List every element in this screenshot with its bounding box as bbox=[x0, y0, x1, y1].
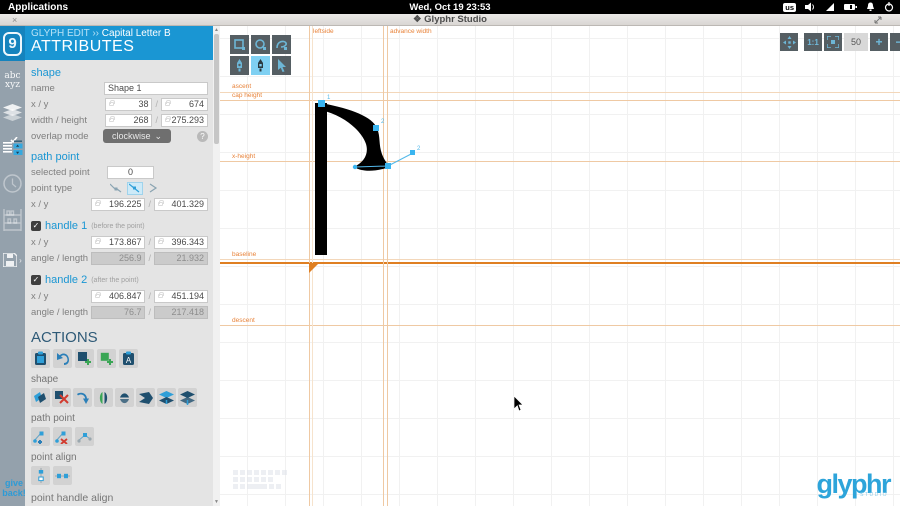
point-xy-row: x / y 196.225 / 401.329 bbox=[31, 197, 208, 211]
window-restore-icon[interactable] bbox=[874, 16, 882, 24]
insert-path-point-button[interactable] bbox=[31, 427, 50, 446]
add-component-button[interactable] bbox=[97, 349, 116, 368]
align-points-x-button[interactable] bbox=[31, 466, 50, 485]
glyph-actions-row: A bbox=[31, 349, 208, 368]
selected-point-input[interactable]: 0 bbox=[107, 166, 154, 179]
layers-icon bbox=[3, 104, 22, 121]
handle2-angle-input: 76.7 bbox=[91, 306, 145, 319]
chevron-down-icon: ⌄ bbox=[154, 131, 162, 142]
glyphr-studio-watermark: glyphr STUDIO bbox=[816, 472, 890, 498]
scroll-down-arrow[interactable]: ▼ bbox=[213, 499, 220, 505]
pan-control bbox=[780, 33, 798, 51]
handle2-heading: handle 2 bbox=[45, 274, 87, 286]
notifications-icon[interactable] bbox=[866, 2, 875, 12]
handle2-hint: (after the point) bbox=[91, 277, 138, 284]
point-y-input[interactable]: 401.329 bbox=[154, 198, 208, 211]
zoom-in-button[interactable]: + bbox=[870, 33, 888, 51]
panel-scrollbar[interactable]: ▲ ▼ bbox=[213, 26, 220, 506]
system-bar: Applications Wed, Oct 19 23:53 us bbox=[0, 0, 900, 14]
delete-path-point-button[interactable] bbox=[53, 427, 72, 446]
handle2-endpoint[interactable] bbox=[410, 150, 415, 155]
window-title: ❖ Glyphr Studio bbox=[413, 14, 487, 25]
shape-wh-row: width / height 268 / 275.293 bbox=[31, 113, 208, 127]
point-type-label: point type bbox=[31, 183, 108, 194]
panel-header: GLYPH EDIT ›› Capital Letter B ATTRIBUTE… bbox=[25, 26, 213, 60]
history-clock-icon bbox=[3, 174, 22, 193]
origin-marker bbox=[309, 263, 319, 273]
shape-y-input[interactable]: 674 bbox=[161, 98, 208, 111]
actions-heading: ACTIONS bbox=[31, 329, 208, 346]
scrollbar-thumb[interactable] bbox=[214, 34, 219, 144]
handle2-xy-row: x / y 406.847 / 451.194 bbox=[31, 289, 208, 303]
main-nav-sidebar: 9 abcxyz › give back! bbox=[0, 26, 25, 506]
overlap-mode-row: overlap mode clockwise⌄ ? bbox=[31, 129, 208, 143]
selected-point-marker[interactable] bbox=[318, 100, 325, 107]
point-type-symmetric-button[interactable] bbox=[108, 182, 124, 195]
slash-separator: / bbox=[155, 99, 158, 109]
paste-glyph-button[interactable]: A bbox=[119, 349, 138, 368]
shape-actions-label: shape bbox=[31, 374, 208, 385]
overlap-mode-label: overlap mode bbox=[31, 131, 103, 142]
lock-icon[interactable] bbox=[165, 118, 170, 122]
zoom-1to1-button[interactable]: 1:1 bbox=[804, 33, 822, 51]
lock-icon[interactable] bbox=[109, 118, 114, 122]
mouse-cursor bbox=[513, 396, 524, 412]
paste-shape-button[interactable] bbox=[31, 349, 50, 368]
undo-button[interactable] bbox=[53, 349, 72, 368]
slash-separator: / bbox=[148, 291, 151, 301]
zoom-fit-button[interactable] bbox=[824, 33, 842, 51]
shape-actions-row bbox=[31, 388, 208, 407]
path-point-actions-row bbox=[31, 427, 208, 446]
svg-text:A: A bbox=[126, 356, 132, 365]
point-type-row: point type bbox=[31, 181, 208, 195]
shape-x-input[interactable]: 38 bbox=[105, 98, 152, 111]
point-align-row bbox=[31, 466, 208, 485]
lock-icon[interactable] bbox=[158, 294, 163, 298]
handle1-length-input: 21.932 bbox=[154, 252, 208, 265]
flip-horizontal-button[interactable] bbox=[94, 388, 113, 407]
shelf-icon bbox=[3, 209, 22, 231]
shape-name-label: name bbox=[31, 83, 104, 94]
lock-icon[interactable] bbox=[95, 294, 100, 298]
handle2-point-label: 2 bbox=[417, 146, 421, 152]
save-disk-icon bbox=[3, 253, 17, 267]
handle1-checkbox[interactable]: ✓ bbox=[31, 221, 41, 231]
nav-history[interactable] bbox=[0, 174, 25, 193]
handle2-y-input[interactable]: 451.194 bbox=[154, 290, 208, 303]
point-handle-align-label: point handle align bbox=[31, 492, 208, 504]
handle2-xy-label: x / y bbox=[31, 291, 91, 302]
path-point-marker[interactable] bbox=[385, 163, 391, 169]
panel-title: ATTRIBUTES bbox=[31, 38, 213, 56]
glyph-bowl[interactable] bbox=[321, 103, 389, 171]
handle2-x-input[interactable]: 406.847 bbox=[91, 290, 145, 303]
window-title-bar[interactable]: × ❖ Glyphr Studio bbox=[0, 14, 900, 26]
glyph-drawing[interactable]: 1 2 2 bbox=[220, 26, 900, 506]
nav-attributes[interactable] bbox=[0, 137, 25, 157]
flip-vertical-button[interactable] bbox=[115, 388, 134, 407]
handle1-x-input[interactable]: 173.867 bbox=[91, 236, 145, 249]
slash-separator: / bbox=[148, 237, 151, 247]
handle2-al-label: angle / length bbox=[31, 307, 91, 318]
handle2-length-input: 217.418 bbox=[154, 306, 208, 319]
new-rectangle-tool[interactable] bbox=[230, 35, 249, 54]
tool-palette bbox=[230, 35, 291, 75]
network-icon[interactable] bbox=[825, 3, 835, 12]
glyphr-logo-icon: 9 bbox=[3, 32, 22, 56]
reverse-winding-button[interactable] bbox=[136, 388, 155, 407]
point-type-flat-button[interactable] bbox=[127, 182, 143, 195]
give-back-link[interactable]: give back! bbox=[0, 478, 28, 498]
battery-icon[interactable] bbox=[844, 3, 857, 11]
shape-xy-row: x / y 38 / 674 bbox=[31, 97, 208, 111]
system-clock[interactable]: Wed, Oct 19 23:53 bbox=[0, 2, 900, 13]
zoom-controls: 1:1 50 + − bbox=[804, 33, 900, 51]
point-type-corner-button[interactable] bbox=[146, 182, 162, 195]
shape-wh-label: width / height bbox=[31, 115, 105, 126]
volume-icon[interactable] bbox=[805, 2, 816, 12]
nav-glyph-list[interactable]: abcxyz bbox=[0, 72, 25, 90]
handle1-heading: handle 1 bbox=[45, 220, 87, 232]
selected-point-row: selected point 0 bbox=[31, 165, 208, 179]
align-points-y-button[interactable] bbox=[53, 466, 72, 485]
keyboard-layout-badge[interactable]: us bbox=[783, 3, 796, 12]
handle1-al-label: angle / length bbox=[31, 253, 91, 264]
point-xy-label: x / y bbox=[31, 199, 91, 210]
attributes-panel: GLYPH EDIT ›› Capital Letter B ATTRIBUTE… bbox=[25, 26, 213, 506]
new-path-tool[interactable] bbox=[272, 35, 291, 54]
edit-canvas[interactable]: ascent cap height x-height baseline desc… bbox=[220, 26, 900, 506]
path-point-actions-label: path point bbox=[31, 413, 208, 424]
slash-separator: / bbox=[148, 307, 151, 317]
handle2-angle-length-row: angle / length 76.7 / 217.418 bbox=[31, 305, 208, 319]
lock-icon[interactable] bbox=[95, 240, 100, 244]
zoom-out-button[interactable]: − bbox=[890, 33, 900, 51]
path-point-section-heading: path point bbox=[31, 151, 208, 163]
system-tray: us bbox=[783, 2, 894, 12]
panel-expand-arrow[interactable]: › bbox=[19, 256, 22, 265]
lock-icon[interactable] bbox=[158, 240, 163, 244]
path-point-marker[interactable] bbox=[373, 125, 379, 131]
selected-point-label: selected point bbox=[31, 167, 107, 178]
overlap-mode-select[interactable]: clockwise⌄ bbox=[103, 129, 171, 143]
handle1-hint: (before the point) bbox=[91, 223, 144, 230]
help-icon[interactable]: ? bbox=[197, 131, 208, 142]
handle1-xy-label: x / y bbox=[31, 237, 91, 248]
nav-save[interactable]: › bbox=[0, 253, 25, 267]
lock-icon[interactable] bbox=[165, 102, 170, 106]
move-shape-down-button[interactable] bbox=[178, 388, 197, 407]
handle1-endpoint[interactable] bbox=[353, 165, 357, 169]
shape-name-row: name Shape 1 bbox=[31, 81, 208, 95]
attributes-checklist-icon bbox=[3, 137, 23, 157]
pan-button[interactable] bbox=[780, 33, 798, 51]
keyboard-hint-graphic bbox=[233, 470, 303, 496]
handle2-line bbox=[388, 153, 413, 166]
scroll-up-arrow[interactable]: ▲ bbox=[213, 27, 220, 33]
shape-xy-label: x / y bbox=[31, 99, 105, 110]
lock-icon[interactable] bbox=[109, 102, 114, 106]
handle2-checkbox[interactable]: ✓ bbox=[31, 275, 41, 285]
window-close-icon[interactable]: × bbox=[12, 15, 17, 25]
point1-label: 1 bbox=[327, 95, 331, 101]
path-add-point-tool[interactable] bbox=[251, 56, 270, 75]
copy-shape-button[interactable] bbox=[31, 388, 50, 407]
nav-glyphr-logo[interactable]: 9 bbox=[0, 26, 25, 61]
power-icon[interactable] bbox=[884, 2, 894, 12]
handle1-angle-length-row: angle / length 256.9 / 21.932 bbox=[31, 251, 208, 265]
rotate-shape-button[interactable] bbox=[73, 388, 92, 407]
path-edit-tool[interactable] bbox=[230, 56, 249, 75]
add-shape-button[interactable] bbox=[75, 349, 94, 368]
handle1-y-input[interactable]: 396.343 bbox=[154, 236, 208, 249]
nav-shelf[interactable] bbox=[0, 209, 25, 231]
shape-name-input[interactable]: Shape 1 bbox=[104, 82, 208, 95]
handle1-angle-input: 256.9 bbox=[91, 252, 145, 265]
glyph-stem[interactable] bbox=[315, 103, 327, 255]
slash-separator: / bbox=[155, 115, 158, 125]
nav-layers[interactable] bbox=[0, 104, 25, 121]
point2-label: 2 bbox=[381, 119, 385, 125]
shape-height-input[interactable]: 275.293 bbox=[161, 114, 208, 127]
lock-icon[interactable] bbox=[95, 202, 100, 206]
slash-separator: / bbox=[148, 253, 151, 263]
lock-icon[interactable] bbox=[158, 202, 163, 206]
shape-resize-tool[interactable] bbox=[272, 56, 291, 75]
shape-section-heading: shape bbox=[31, 67, 208, 79]
shape-width-input[interactable]: 268 bbox=[105, 114, 152, 127]
move-shape-up-button[interactable] bbox=[157, 388, 176, 407]
handle1-heading-row: ✓ handle 1 (before the point) bbox=[31, 219, 208, 233]
slash-separator: / bbox=[148, 199, 151, 209]
point-align-label: point align bbox=[31, 452, 208, 463]
handle1-xy-row: x / y 173.867 / 396.343 bbox=[31, 235, 208, 249]
delete-shape-button[interactable] bbox=[52, 388, 71, 407]
new-oval-tool[interactable] bbox=[251, 35, 270, 54]
zoom-level-value[interactable]: 50 bbox=[844, 33, 868, 51]
point-x-input[interactable]: 196.225 bbox=[91, 198, 145, 211]
reset-point-handles-button[interactable] bbox=[75, 427, 94, 446]
handle2-heading-row: ✓ handle 2 (after the point) bbox=[31, 273, 208, 287]
